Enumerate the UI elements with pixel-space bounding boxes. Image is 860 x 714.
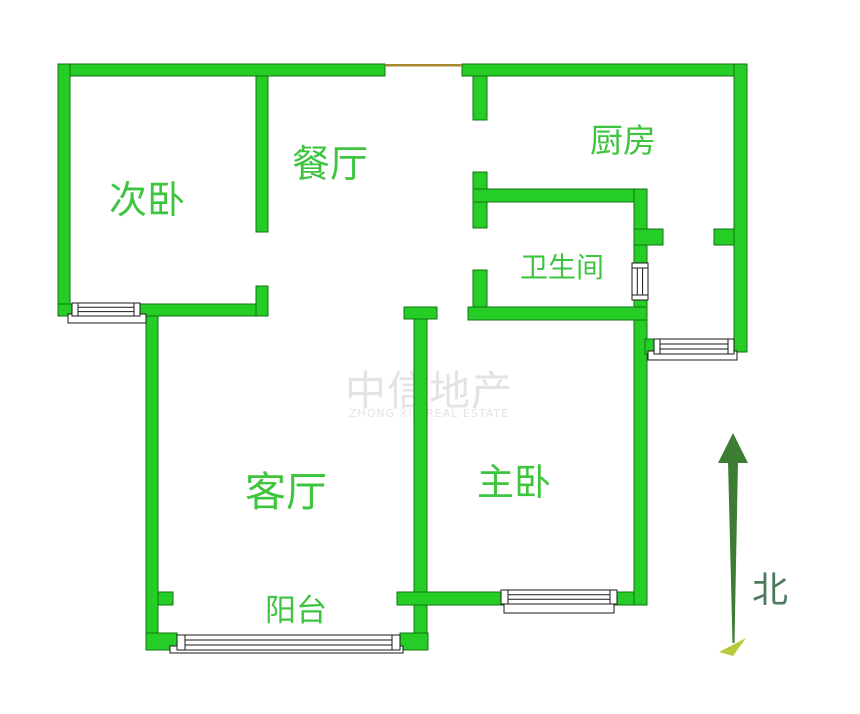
wall xyxy=(468,307,647,320)
window-symbol xyxy=(648,339,737,360)
room-label-balcony: 阳台 xyxy=(265,593,327,629)
wall xyxy=(634,189,647,264)
window-symbol xyxy=(632,263,648,300)
wall xyxy=(734,64,747,352)
window-symbol xyxy=(68,303,146,323)
wall xyxy=(414,319,427,592)
wall xyxy=(414,605,427,633)
wall xyxy=(473,76,487,120)
room-label-secondary-bedroom: 次卧 xyxy=(109,178,185,222)
room-label-kitchen: 厨房 xyxy=(590,121,656,160)
floor-plan-page: 中信地产 ZHONG XIN REAL ESTATE xyxy=(0,0,860,714)
floor-plan: 中信地产 ZHONG XIN REAL ESTATE xyxy=(0,0,860,714)
wall xyxy=(256,76,268,232)
wall xyxy=(400,633,428,650)
wall xyxy=(462,64,745,76)
watermark-subtext: ZHONG XIN REAL ESTATE xyxy=(349,407,509,420)
wall xyxy=(58,64,385,76)
room-label-master-bedroom: 主卧 xyxy=(477,461,551,504)
north-arrow-icon xyxy=(718,433,748,656)
window-symbol xyxy=(170,635,403,653)
room-label-bathroom: 卫生间 xyxy=(520,251,604,284)
room-label-dining-room: 餐厅 xyxy=(292,142,368,186)
window-symbol xyxy=(501,590,617,613)
entry-door-line xyxy=(385,64,462,67)
wall xyxy=(404,307,437,319)
watermark: 中信地产 ZHONG XIN REAL ESTATE xyxy=(345,367,513,420)
wall xyxy=(58,64,70,316)
north-label: 北 xyxy=(752,570,788,611)
wall xyxy=(256,286,268,316)
wall xyxy=(634,229,663,245)
wall xyxy=(146,316,158,650)
wall xyxy=(158,592,173,605)
wall xyxy=(397,592,503,605)
room-label-living-room: 客厅 xyxy=(245,468,327,516)
wall xyxy=(473,270,487,307)
wall xyxy=(714,229,734,245)
wall xyxy=(473,189,647,202)
